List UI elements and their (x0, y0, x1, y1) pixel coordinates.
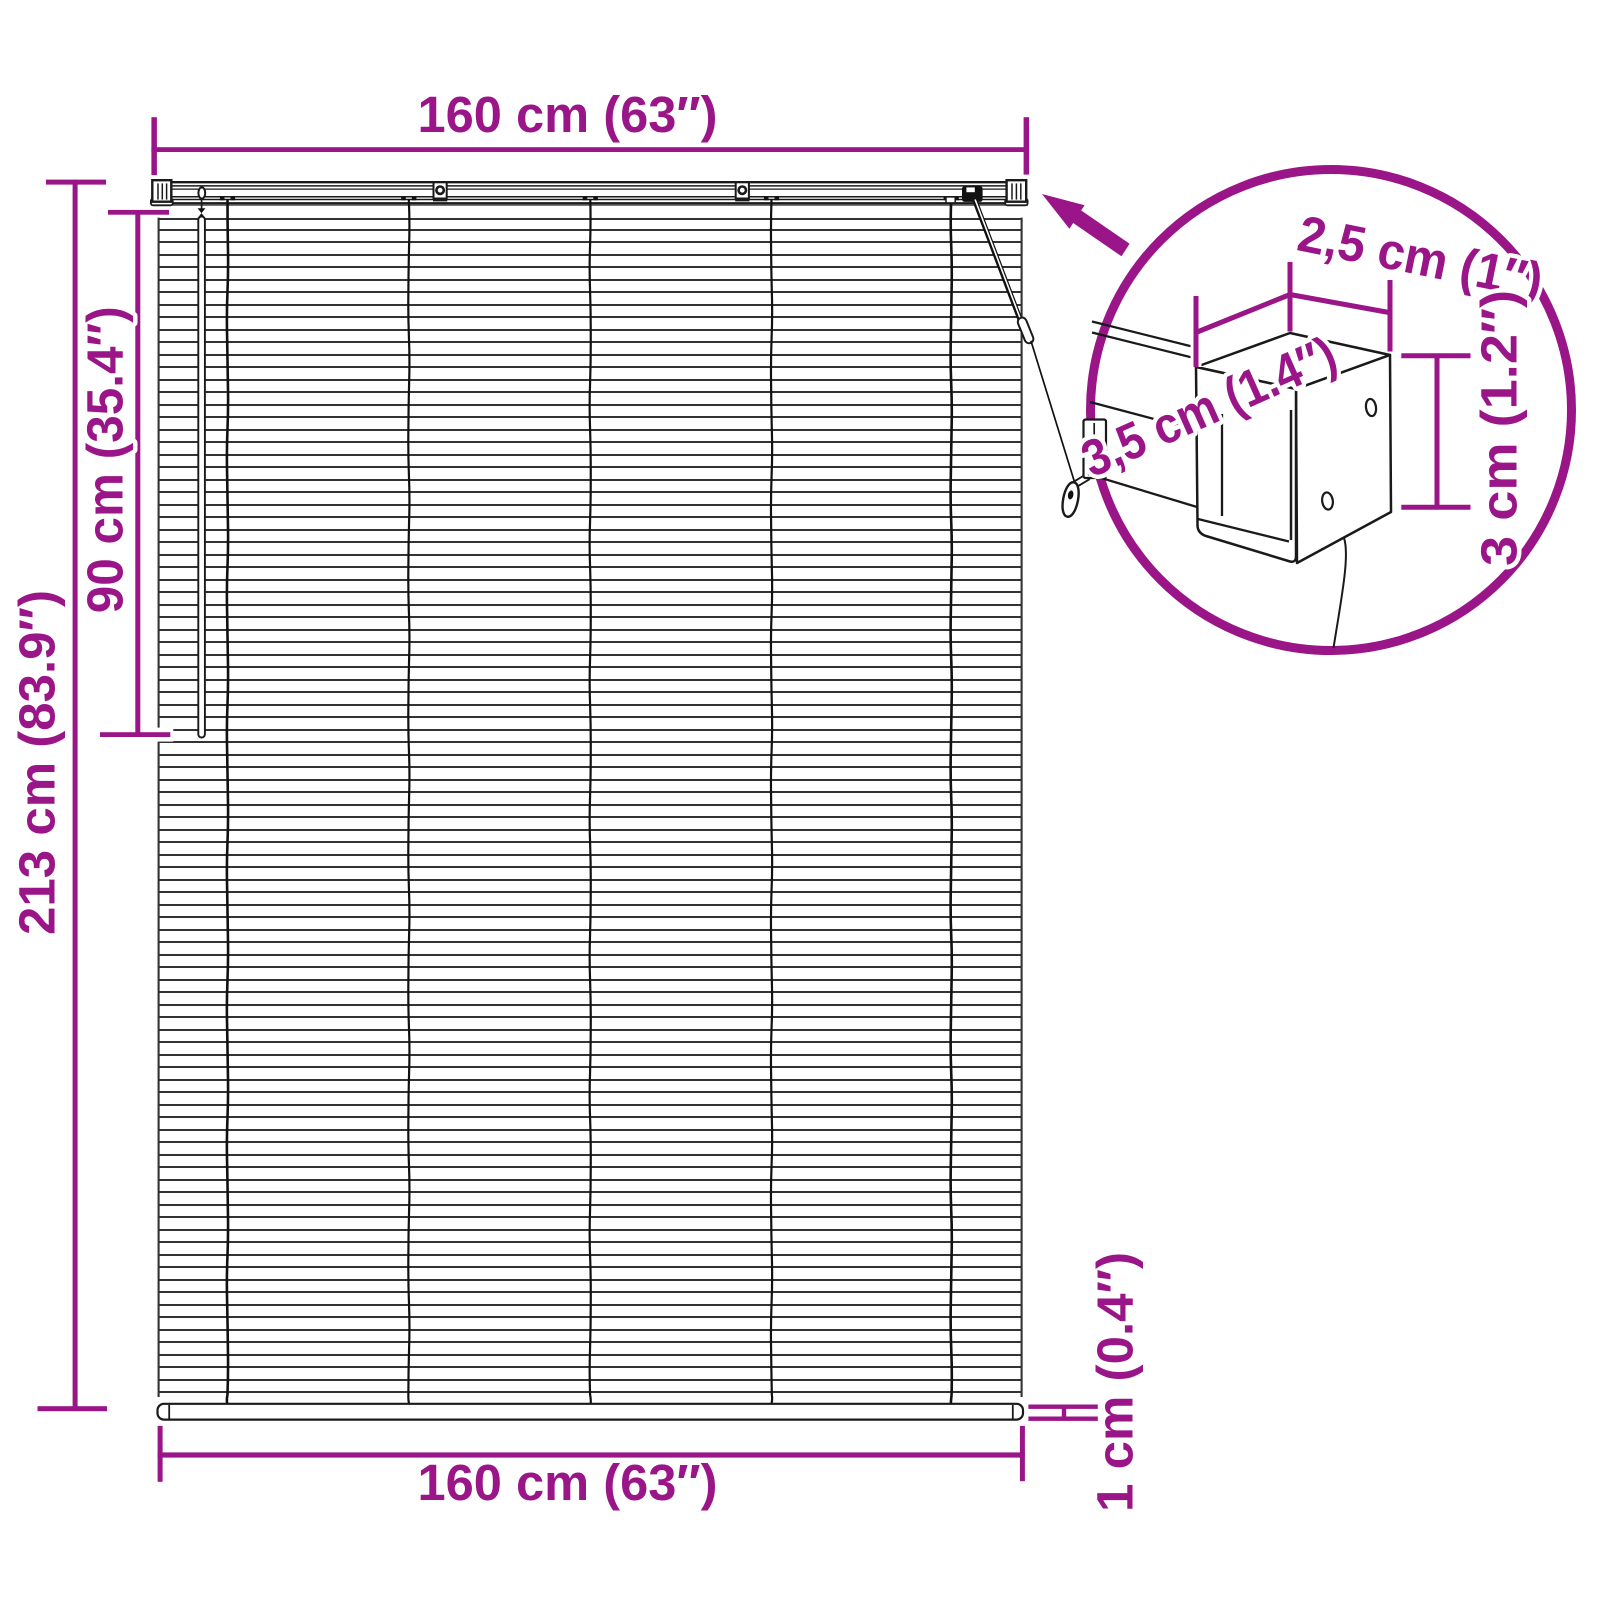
svg-text:1 cm (0.4″): 1 cm (0.4″) (1086, 1252, 1143, 1512)
svg-text:213 cm (83.9″): 213 cm (83.9″) (9, 590, 66, 935)
svg-text:160 cm (63″): 160 cm (63″) (418, 86, 718, 143)
svg-text:90 cm (35.4″): 90 cm (35.4″) (77, 306, 134, 613)
svg-text:160 cm (63″): 160 cm (63″) (418, 1454, 718, 1511)
svg-text:3 cm (1.2″): 3 cm (1.2″) (1470, 290, 1527, 566)
